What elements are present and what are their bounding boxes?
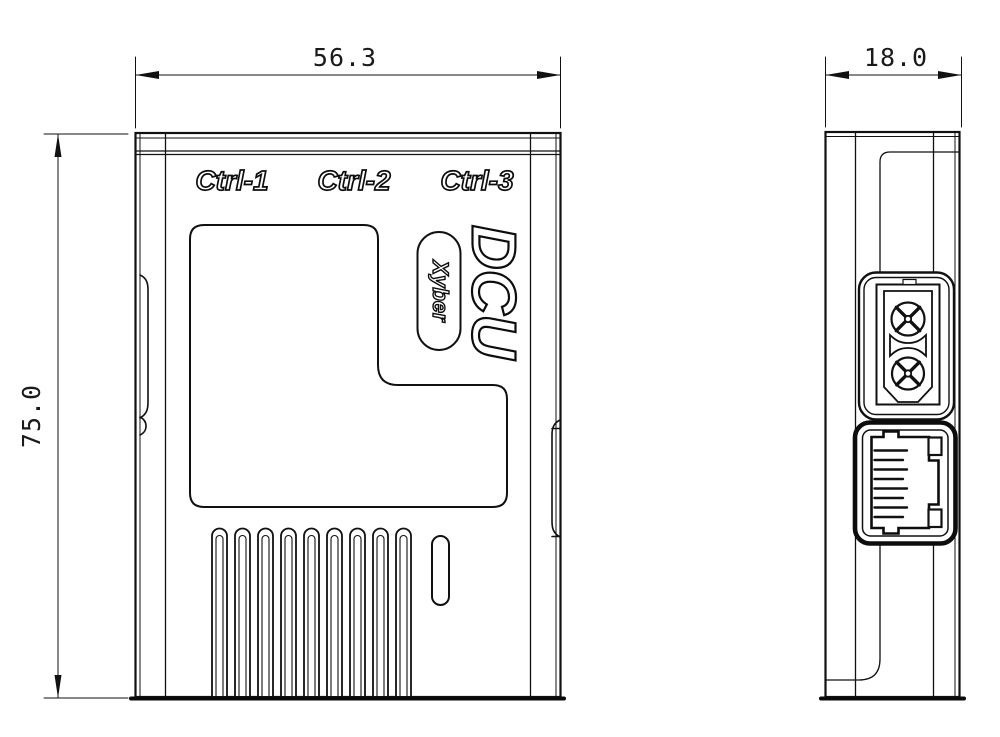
- ctrl2-label: Ctrl-2: [317, 165, 391, 196]
- drawing-svg: 56.3 75.0 Ctrl-1: [0, 0, 1000, 737]
- brand-badge: Xyber: [418, 232, 461, 350]
- arrowhead-left-icon: [826, 71, 850, 79]
- arrowhead-right-icon: [938, 71, 962, 79]
- technical-drawing-page: 56.3 75.0 Ctrl-1: [0, 0, 1000, 737]
- port-labels: Ctrl-1 Ctrl-2 Ctrl-3: [195, 165, 514, 196]
- ctrl1-label: Ctrl-1: [195, 165, 268, 196]
- depth-dimension: 18.0: [826, 43, 962, 127]
- rj45-key-bottom: [929, 510, 942, 528]
- ethernet-jack-rj45: [855, 423, 956, 544]
- height-dimension: 75.0: [17, 134, 128, 698]
- height-dim-text: 75.0: [17, 384, 46, 448]
- power-terminal-bottom-icon: [892, 358, 924, 390]
- front-view: 56.3 75.0 Ctrl-1: [17, 43, 564, 699]
- brand-label: Xyber: [428, 258, 453, 323]
- model-label: DCU: [459, 225, 528, 362]
- arrowhead-down-icon: [55, 675, 62, 698]
- arrowhead-left-icon: [136, 71, 160, 79]
- width-dim-text: 56.3: [313, 43, 377, 72]
- ctrl3-label: Ctrl-3: [440, 165, 514, 196]
- power-terminal-top-icon: [892, 303, 925, 336]
- depth-dim-text: 18.0: [864, 43, 928, 72]
- arrowhead-up-icon: [55, 134, 62, 157]
- button-slot: [432, 536, 449, 605]
- rj45-key-top: [929, 438, 942, 456]
- arrowhead-right-icon: [537, 71, 561, 79]
- power-connector-xt30: [859, 273, 954, 420]
- width-dimension: 56.3: [136, 43, 561, 128]
- vent-slots: [212, 529, 411, 697]
- side-view: 18.0: [821, 43, 964, 699]
